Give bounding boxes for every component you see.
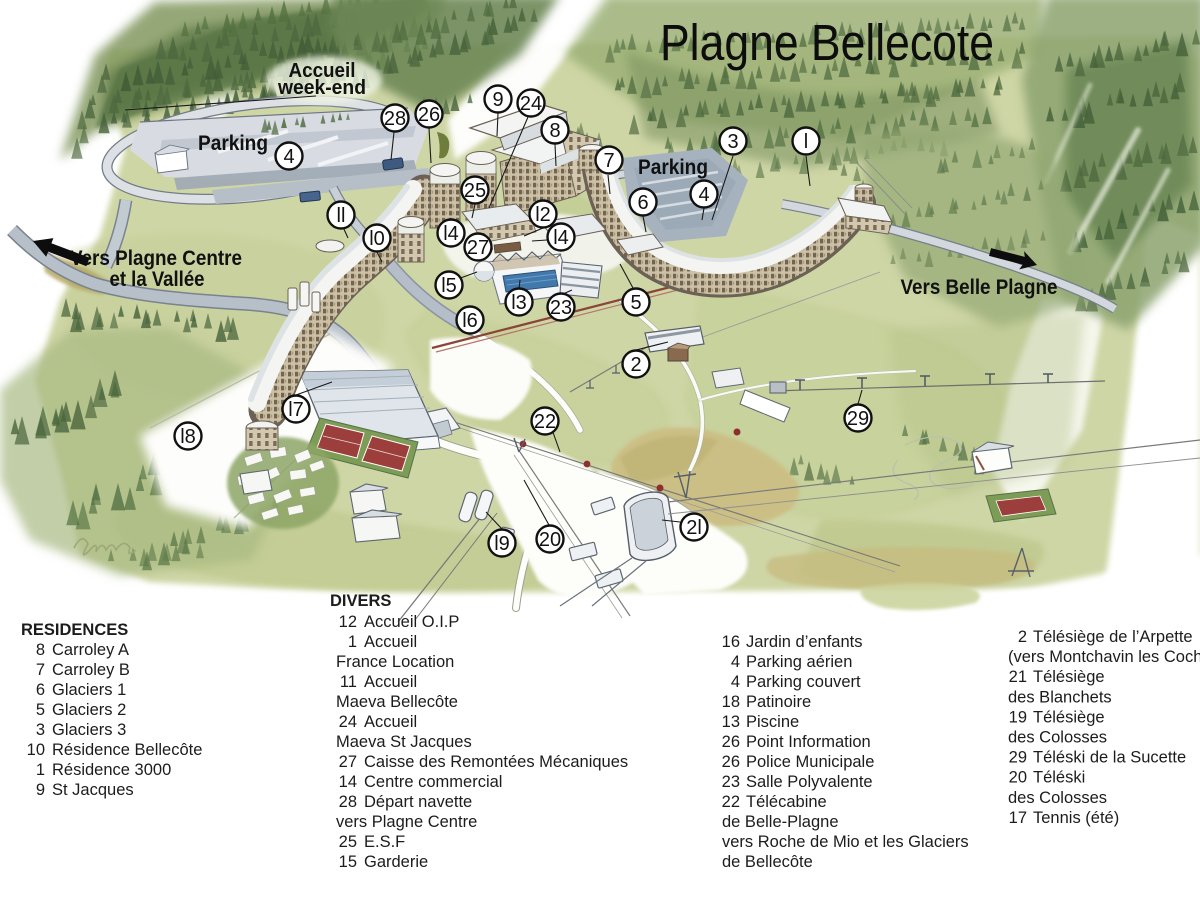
svg-text:Glaciers 1: Glaciers 1 — [52, 681, 126, 699]
svg-text:24: 24 — [339, 713, 357, 731]
svg-text:4: 4 — [731, 653, 740, 671]
svg-text:ll: ll — [337, 205, 346, 227]
svg-text:Tennis (été): Tennis (été) — [1033, 809, 1119, 827]
svg-text:17: 17 — [1009, 809, 1027, 827]
svg-text:2: 2 — [1018, 628, 1027, 646]
svg-text:l4: l4 — [553, 227, 569, 249]
svg-text:19: 19 — [1009, 708, 1027, 726]
svg-text:23: 23 — [722, 773, 740, 791]
svg-text:Carroley B: Carroley B — [52, 661, 130, 679]
svg-text:13: 13 — [722, 713, 740, 731]
svg-text:Télécabine: Télécabine — [746, 793, 827, 811]
svg-text:Accueil: Accueil — [364, 673, 417, 691]
svg-text:Télésiège: Télésiège — [1033, 668, 1105, 686]
svg-text:26: 26 — [418, 104, 440, 126]
svg-text:Caisse des Remontées Mécanique: Caisse des Remontées Mécaniques — [364, 753, 628, 771]
svg-text:des Blanchets: des Blanchets — [1008, 688, 1112, 706]
svg-text:Parking aérien: Parking aérien — [746, 653, 852, 671]
svg-text:RESIDENCES: RESIDENCES — [21, 621, 128, 639]
svg-text:E.S.F: E.S.F — [364, 833, 405, 851]
svg-text:l5: l5 — [441, 275, 457, 297]
svg-text:Accueil O.I.P: Accueil O.I.P — [364, 613, 459, 631]
svg-text:Télésiège: Télésiège — [1033, 708, 1105, 726]
svg-text:Parking: Parking — [198, 132, 268, 155]
svg-text:Carroley A: Carroley A — [52, 641, 129, 659]
svg-text:Télésiège de l’Arpette: Télésiège de l’Arpette — [1033, 628, 1193, 646]
svg-text:Centre commercial: Centre commercial — [364, 773, 502, 791]
svg-text:week-end: week-end — [277, 77, 366, 99]
svg-text:1: 1 — [36, 761, 45, 779]
svg-text:Plagne Bellecote: Plagne Bellecote — [660, 14, 994, 71]
svg-text:25: 25 — [339, 833, 357, 851]
svg-text:Vers Plagne Centre: Vers Plagne Centre — [70, 247, 242, 270]
svg-text:Salle Polyvalente: Salle Polyvalente — [746, 773, 873, 791]
svg-text:3: 3 — [727, 131, 738, 153]
svg-text:Glaciers 3: Glaciers 3 — [52, 721, 126, 739]
svg-text:2l: 2l — [686, 517, 702, 539]
svg-text:29: 29 — [847, 408, 869, 430]
svg-text:29: 29 — [1009, 749, 1027, 767]
svg-text:Parking couvert: Parking couvert — [746, 673, 861, 691]
svg-text:Jardin d’enfants: Jardin d’enfants — [746, 633, 863, 651]
svg-text:l3: l3 — [511, 292, 527, 314]
svg-text:22: 22 — [722, 793, 740, 811]
svg-text:5: 5 — [630, 292, 641, 314]
svg-text:20: 20 — [1009, 769, 1027, 787]
svg-text:4: 4 — [731, 673, 740, 691]
svg-text:vers Roche de Mio et les Glaci: vers Roche de Mio et les Glaciers — [722, 833, 969, 851]
svg-text:2: 2 — [630, 354, 641, 376]
svg-text:l6: l6 — [462, 310, 478, 332]
svg-text:8: 8 — [549, 120, 560, 142]
svg-text:de Belle-Plagne: de Belle-Plagne — [722, 813, 839, 831]
svg-text:1: 1 — [348, 633, 357, 651]
svg-text:des Colosses: des Colosses — [1008, 729, 1107, 747]
svg-text:Police Municipale: Police Municipale — [746, 753, 874, 771]
svg-text:Résidence 3000: Résidence 3000 — [52, 761, 171, 779]
svg-text:12: 12 — [339, 613, 357, 631]
svg-text:16: 16 — [722, 633, 740, 651]
svg-text:Garderie: Garderie — [364, 853, 428, 871]
svg-text:3: 3 — [36, 721, 45, 739]
svg-text:11: 11 — [340, 673, 357, 691]
svg-text:Maeva St Jacques: Maeva St Jacques — [336, 733, 472, 751]
svg-text:7: 7 — [603, 150, 614, 172]
svg-text:15: 15 — [339, 853, 357, 871]
svg-text:Vers Belle Plagne: Vers Belle Plagne — [901, 276, 1058, 299]
svg-text:Téléski: Téléski — [1033, 769, 1085, 787]
svg-text:Résidence Bellecôte: Résidence Bellecôte — [52, 741, 202, 759]
svg-text:6: 6 — [36, 681, 45, 699]
svg-text:l0: l0 — [369, 228, 385, 250]
svg-text:Téléski de la Sucette: Téléski de la Sucette — [1033, 749, 1186, 767]
svg-text:l9: l9 — [494, 533, 510, 555]
svg-text:de Bellecôte: de Bellecôte — [722, 853, 813, 871]
svg-text:7: 7 — [36, 661, 45, 679]
svg-text:25: 25 — [464, 180, 486, 202]
svg-text:l4: l4 — [443, 223, 459, 245]
svg-text:Point Information: Point Information — [746, 733, 871, 751]
svg-text:l: l — [804, 131, 808, 153]
svg-text:26: 26 — [722, 753, 740, 771]
svg-text:27: 27 — [467, 237, 489, 259]
svg-text:24: 24 — [520, 93, 542, 115]
svg-text:18: 18 — [722, 693, 740, 711]
svg-text:l2: l2 — [535, 204, 551, 226]
svg-text:27: 27 — [339, 753, 357, 771]
svg-text:France Location: France Location — [336, 653, 454, 671]
svg-text:10: 10 — [27, 741, 45, 759]
svg-text:6: 6 — [637, 192, 648, 214]
svg-text:4: 4 — [283, 146, 294, 168]
svg-text:l8: l8 — [180, 426, 196, 448]
svg-text:9: 9 — [36, 781, 45, 799]
svg-text:DIVERS: DIVERS — [330, 592, 391, 610]
svg-text:l7: l7 — [288, 399, 304, 421]
svg-text:20: 20 — [539, 529, 561, 551]
svg-text:26: 26 — [722, 733, 740, 751]
svg-text:Maeva Bellecôte: Maeva Bellecôte — [336, 693, 458, 711]
svg-text:Piscine: Piscine — [746, 713, 799, 731]
svg-text:Accueil: Accueil — [364, 633, 417, 651]
svg-text:23: 23 — [550, 297, 572, 319]
svg-text:Patinoire: Patinoire — [746, 693, 811, 711]
svg-text:Accueil: Accueil — [364, 713, 417, 731]
svg-text:des Colosses: des Colosses — [1008, 789, 1107, 807]
svg-text:et la Vallée: et la Vallée — [110, 268, 205, 291]
svg-text:vers Plagne Centre: vers Plagne Centre — [336, 813, 477, 831]
svg-text:28: 28 — [384, 108, 406, 130]
svg-text:14: 14 — [339, 773, 357, 791]
svg-text:St Jacques: St Jacques — [52, 781, 134, 799]
svg-text:5: 5 — [36, 701, 45, 719]
svg-text:Parking: Parking — [638, 156, 708, 179]
svg-text:8: 8 — [36, 641, 45, 659]
svg-text:(vers Montchavin les Coches): (vers Montchavin les Coches) — [1008, 648, 1200, 666]
svg-text:4: 4 — [698, 184, 709, 206]
svg-text:Glaciers 2: Glaciers 2 — [52, 701, 126, 719]
svg-text:Départ navette: Départ navette — [364, 793, 472, 811]
svg-text:22: 22 — [534, 411, 556, 433]
svg-text:9: 9 — [492, 89, 503, 111]
svg-text:21: 21 — [1009, 668, 1027, 686]
svg-text:28: 28 — [339, 793, 357, 811]
